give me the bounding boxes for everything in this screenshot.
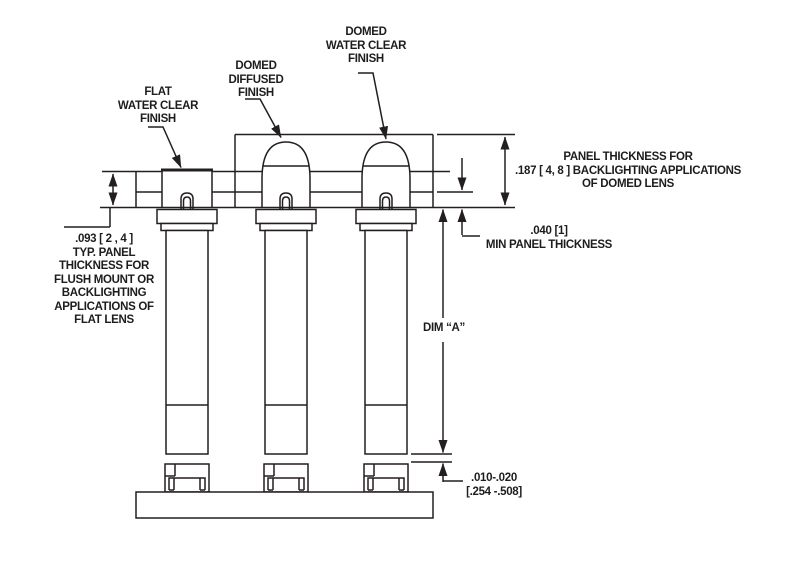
- dimension-text-line: .010-.020: [446, 472, 542, 486]
- dimension-board-gap: .010-.020 [.254 -.508]: [446, 472, 542, 499]
- label-line: WATER CLEAR: [98, 100, 218, 114]
- label-line: FINISH: [98, 113, 218, 127]
- dimension-text-line: [.254 -.508]: [446, 486, 542, 500]
- label-line: DOMED: [196, 60, 316, 74]
- label-flat-water-clear-finish: FLAT WATER CLEAR FINISH: [98, 86, 218, 127]
- dimension-text-line: BACKLIGHTING: [24, 287, 184, 301]
- indicator-lamp-domed-clear: [356, 142, 416, 454]
- dimension-text-line: .187 [ 4, 8 ] BACKLIGHTING APPLICATIONS: [500, 165, 756, 179]
- dimension-text-line: DIM “A”: [421, 322, 467, 334]
- label-line: DIFFUSED: [196, 74, 316, 88]
- dimension-text-line: .040 [1]: [459, 225, 639, 239]
- dimension-text-line: .093 [ 2 , 4 ]: [24, 233, 184, 247]
- dimension-text-line: THICKNESS FOR: [24, 260, 184, 274]
- label-line: WATER CLEAR: [306, 40, 426, 54]
- dimension-text-line: TYP. PANEL: [24, 247, 184, 261]
- label-line: DOMED: [306, 26, 426, 40]
- dimension-text-line: FLAT LENS: [24, 314, 184, 328]
- label-line: FINISH: [306, 53, 426, 67]
- dimension-min-panel-thickness: .040 [1] MIN PANEL THICKNESS: [459, 225, 639, 252]
- circuit-board: [136, 492, 433, 518]
- technical-drawing-page: DOMED WATER CLEAR FINISH DOMED DIFFUSED …: [0, 0, 798, 566]
- label-line: FLAT: [98, 86, 218, 100]
- label-domed-water-clear-finish: DOMED WATER CLEAR FINISH: [306, 26, 426, 67]
- dimension-dim-a: DIM “A”: [406, 322, 482, 336]
- dimension-text-line: MIN PANEL THICKNESS: [459, 239, 639, 253]
- indicator-lamp-domed-diffused: [256, 142, 316, 454]
- dimension-text-line: OF DOMED LENS: [500, 178, 756, 192]
- dimension-text-line: FLUSH MOUNT OR: [24, 274, 184, 288]
- lamp-sockets-and-board: [136, 464, 433, 518]
- dimension-text-line: PANEL THICKNESS FOR: [500, 151, 756, 165]
- dimension-text-line: APPLICATIONS OF: [24, 301, 184, 315]
- dimension-flat-panel-thickness: .093 [ 2 , 4 ] TYP. PANEL THICKNESS FOR …: [24, 233, 184, 328]
- dimension-domed-panel-thickness: PANEL THICKNESS FOR .187 [ 4, 8 ] BACKLI…: [500, 151, 756, 192]
